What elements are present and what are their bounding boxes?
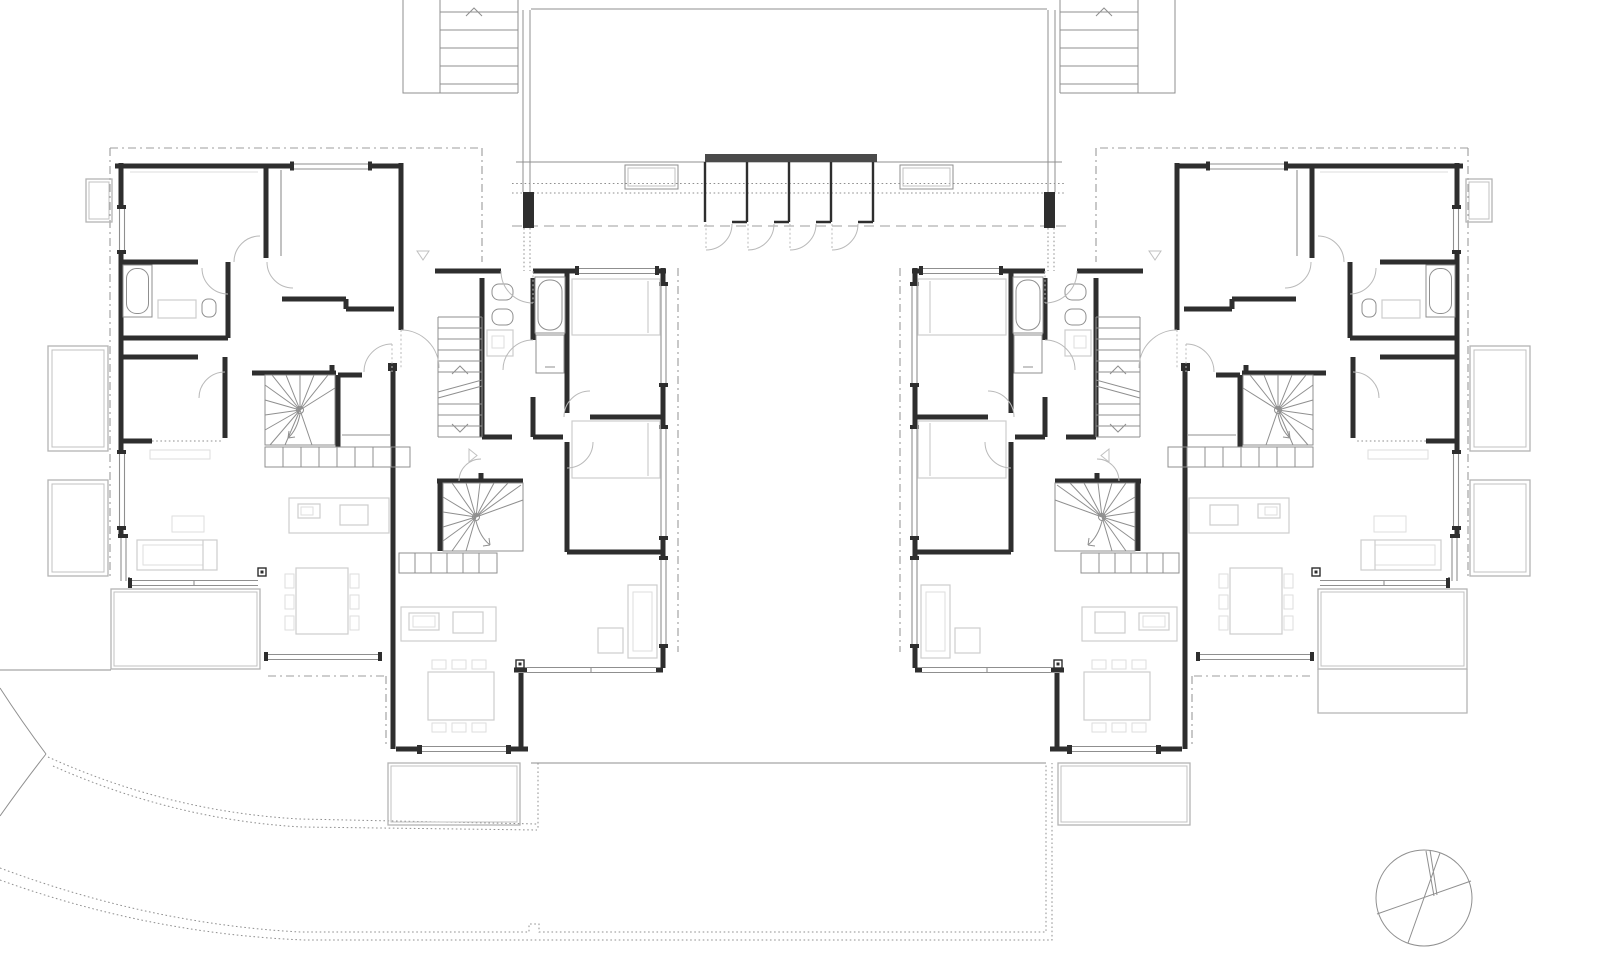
skylight-outer xyxy=(625,165,678,189)
entry-threshold-dotted xyxy=(524,228,530,271)
sofa-seat xyxy=(633,592,652,651)
tread-strip-2 xyxy=(399,553,497,573)
tub-basin xyxy=(127,269,149,314)
column-outer xyxy=(258,568,266,576)
stair-outline xyxy=(443,483,523,551)
storage-door-arcs xyxy=(706,224,858,250)
tub-basin xyxy=(538,280,562,330)
tv-sideboard xyxy=(150,450,210,459)
terrace-outer-unit xyxy=(111,589,260,669)
toilet-outer-unit xyxy=(202,299,216,317)
tub-rim xyxy=(123,265,152,317)
chair xyxy=(472,660,486,669)
sofa-outer-unit xyxy=(137,540,217,570)
wc-bidet xyxy=(492,309,513,325)
terrace-outer-inner-line xyxy=(114,592,257,666)
tree-branches xyxy=(1377,850,1471,943)
hob xyxy=(453,612,483,633)
toilet-bowl xyxy=(202,299,216,317)
side-table xyxy=(598,628,623,653)
sofa-outline xyxy=(628,585,657,658)
entry-walkway xyxy=(512,9,1066,250)
chair xyxy=(452,723,466,732)
bathtub-outer-unit xyxy=(123,265,152,317)
planter-west-2 xyxy=(48,480,108,576)
bed-outline xyxy=(572,421,660,478)
terrace-inner-unit xyxy=(388,763,520,825)
winder-stair-2 xyxy=(443,483,523,551)
column-core xyxy=(261,571,264,574)
plot-boundary xyxy=(0,763,1052,940)
chair xyxy=(285,595,294,609)
kitchen-island-outer xyxy=(289,498,389,533)
storage-cell-walls xyxy=(705,162,873,222)
planter-west-1-inner xyxy=(52,350,104,447)
kitchen-island-inner xyxy=(401,607,496,641)
outer-unit-walls xyxy=(115,163,663,749)
road-edge-solid xyxy=(0,688,46,816)
stair-outline xyxy=(403,0,518,93)
planter-west-1 xyxy=(48,346,108,451)
bed-2-inner-unit xyxy=(572,421,660,478)
chair xyxy=(350,616,359,630)
site xyxy=(0,669,1472,946)
chair xyxy=(432,723,446,732)
planter-north xyxy=(86,179,112,222)
bed-1-inner-unit xyxy=(572,279,660,335)
skylight-outer xyxy=(900,165,953,189)
dining-table xyxy=(296,568,348,634)
chair xyxy=(452,660,466,669)
right-terrace-extension xyxy=(1318,669,1467,713)
stair-direction-chevrons xyxy=(452,366,468,432)
chair xyxy=(285,616,294,630)
chair xyxy=(350,574,359,588)
terrace-inner-inner-line xyxy=(391,766,517,822)
stair-break-line xyxy=(438,380,482,398)
dining-set-inner xyxy=(428,660,494,732)
sofa-seat xyxy=(143,545,203,565)
storage-back-wall xyxy=(705,154,877,162)
walkway-pillar xyxy=(523,192,534,228)
chair xyxy=(350,595,359,609)
coffee-table xyxy=(172,516,204,532)
chair xyxy=(472,723,486,732)
stair-treads xyxy=(438,317,482,437)
column-core xyxy=(519,663,522,666)
sink-basin xyxy=(301,507,313,515)
skylight-inner xyxy=(903,168,950,186)
planter-north-inner xyxy=(89,182,109,219)
planter-west-2-inner xyxy=(52,484,104,572)
sofa-inner-unit xyxy=(598,585,657,658)
walkway-side-wall xyxy=(523,10,530,192)
bed-outline xyxy=(572,279,660,335)
straight-stair xyxy=(438,317,482,437)
stair-treads xyxy=(440,12,518,84)
washing-machine xyxy=(536,335,564,373)
entry-marker-triangle xyxy=(417,251,429,260)
stair-winders xyxy=(443,483,523,551)
skylight-left xyxy=(625,165,678,189)
sink-basin xyxy=(413,616,435,627)
bathtub-inner-unit xyxy=(535,277,565,333)
chair xyxy=(285,574,294,588)
block-left xyxy=(48,0,678,825)
wc-toilet xyxy=(492,284,513,300)
stair-winders xyxy=(265,375,335,445)
winder-stair-1 xyxy=(265,375,335,445)
block-right xyxy=(900,0,1530,825)
floor-plan-canvas: Residential floor plan — two mirrored ap… xyxy=(0,0,1600,960)
dining-set-outer xyxy=(285,568,359,634)
chair xyxy=(432,660,446,669)
tread-strip-1 xyxy=(265,447,410,467)
storage-lockers xyxy=(705,154,877,250)
exterior-stair xyxy=(403,0,534,271)
path-edge-upper xyxy=(48,757,538,830)
column-inner xyxy=(516,660,524,668)
wc-vanity-basin xyxy=(492,336,504,348)
hob xyxy=(340,505,368,525)
tree-symbol xyxy=(1376,850,1472,946)
skylight-right xyxy=(900,165,953,189)
vanity-outer-unit xyxy=(158,300,196,318)
dining-table xyxy=(428,672,494,720)
stair-walk-arrow xyxy=(476,521,490,546)
